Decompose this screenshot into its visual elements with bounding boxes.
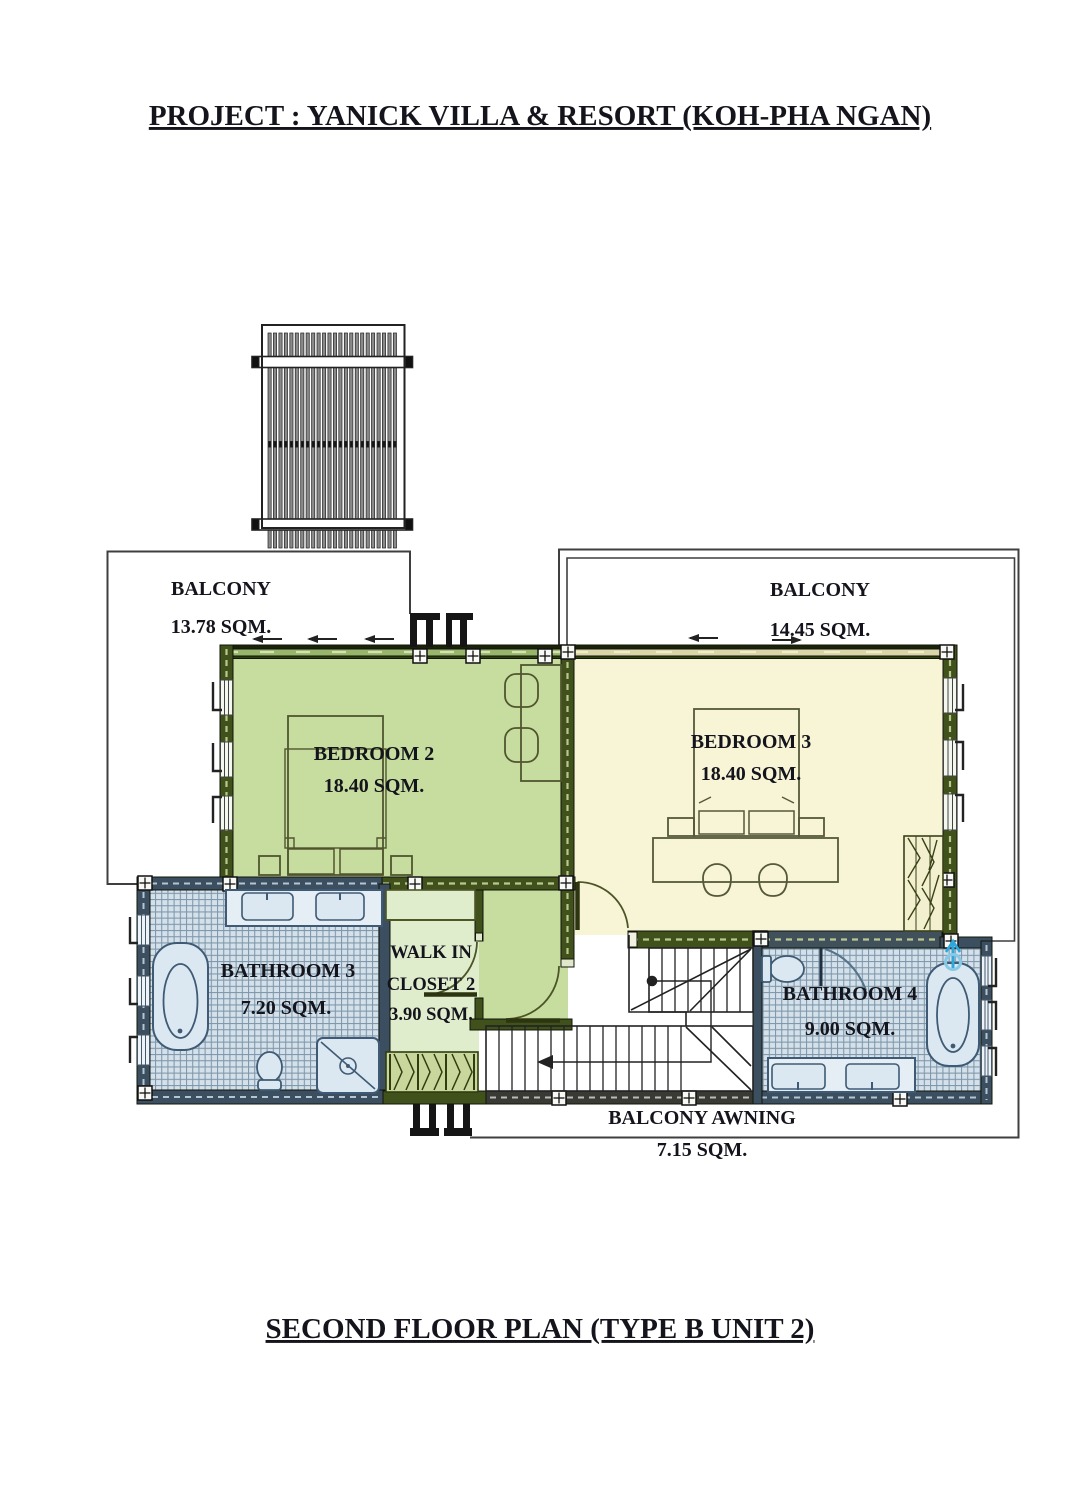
svg-text:13.78 SQM.: 13.78 SQM. [171,616,272,638]
svg-text:14.45 SQM.: 14.45 SQM. [770,619,871,641]
svg-text:BEDROOM 2: BEDROOM 2 [314,743,435,765]
svg-text:18.40 SQM.: 18.40 SQM. [701,763,802,785]
svg-text:3.90 SQM.: 3.90 SQM. [389,1005,473,1025]
svg-text:9.00 SQM.: 9.00 SQM. [805,1018,896,1040]
svg-text:SECOND FLOOR PLAN (TYPE B UNIT: SECOND FLOOR PLAN (TYPE B UNIT 2) [266,1313,815,1345]
svg-text:BALCONY: BALCONY [770,579,871,601]
svg-text:BATHROOM 4: BATHROOM 4 [783,983,918,1005]
svg-text:WALK IN: WALK IN [390,943,472,963]
svg-text:BATHROOM 3: BATHROOM 3 [221,960,356,982]
svg-text:BEDROOM 3: BEDROOM 3 [691,731,812,753]
svg-text:PROJECT : YANICK VILLA & RESOR: PROJECT : YANICK VILLA & RESORT (KOH-PHA… [149,100,931,132]
svg-text:BALCONY AWNING: BALCONY AWNING [608,1107,796,1129]
svg-text:7.20 SQM.: 7.20 SQM. [241,997,332,1019]
svg-text:BALCONY: BALCONY [171,578,272,600]
svg-text:CLOSET 2: CLOSET 2 [387,975,476,995]
svg-text:18.40 SQM.: 18.40 SQM. [324,775,425,797]
svg-text:7.15 SQM.: 7.15 SQM. [657,1139,748,1161]
